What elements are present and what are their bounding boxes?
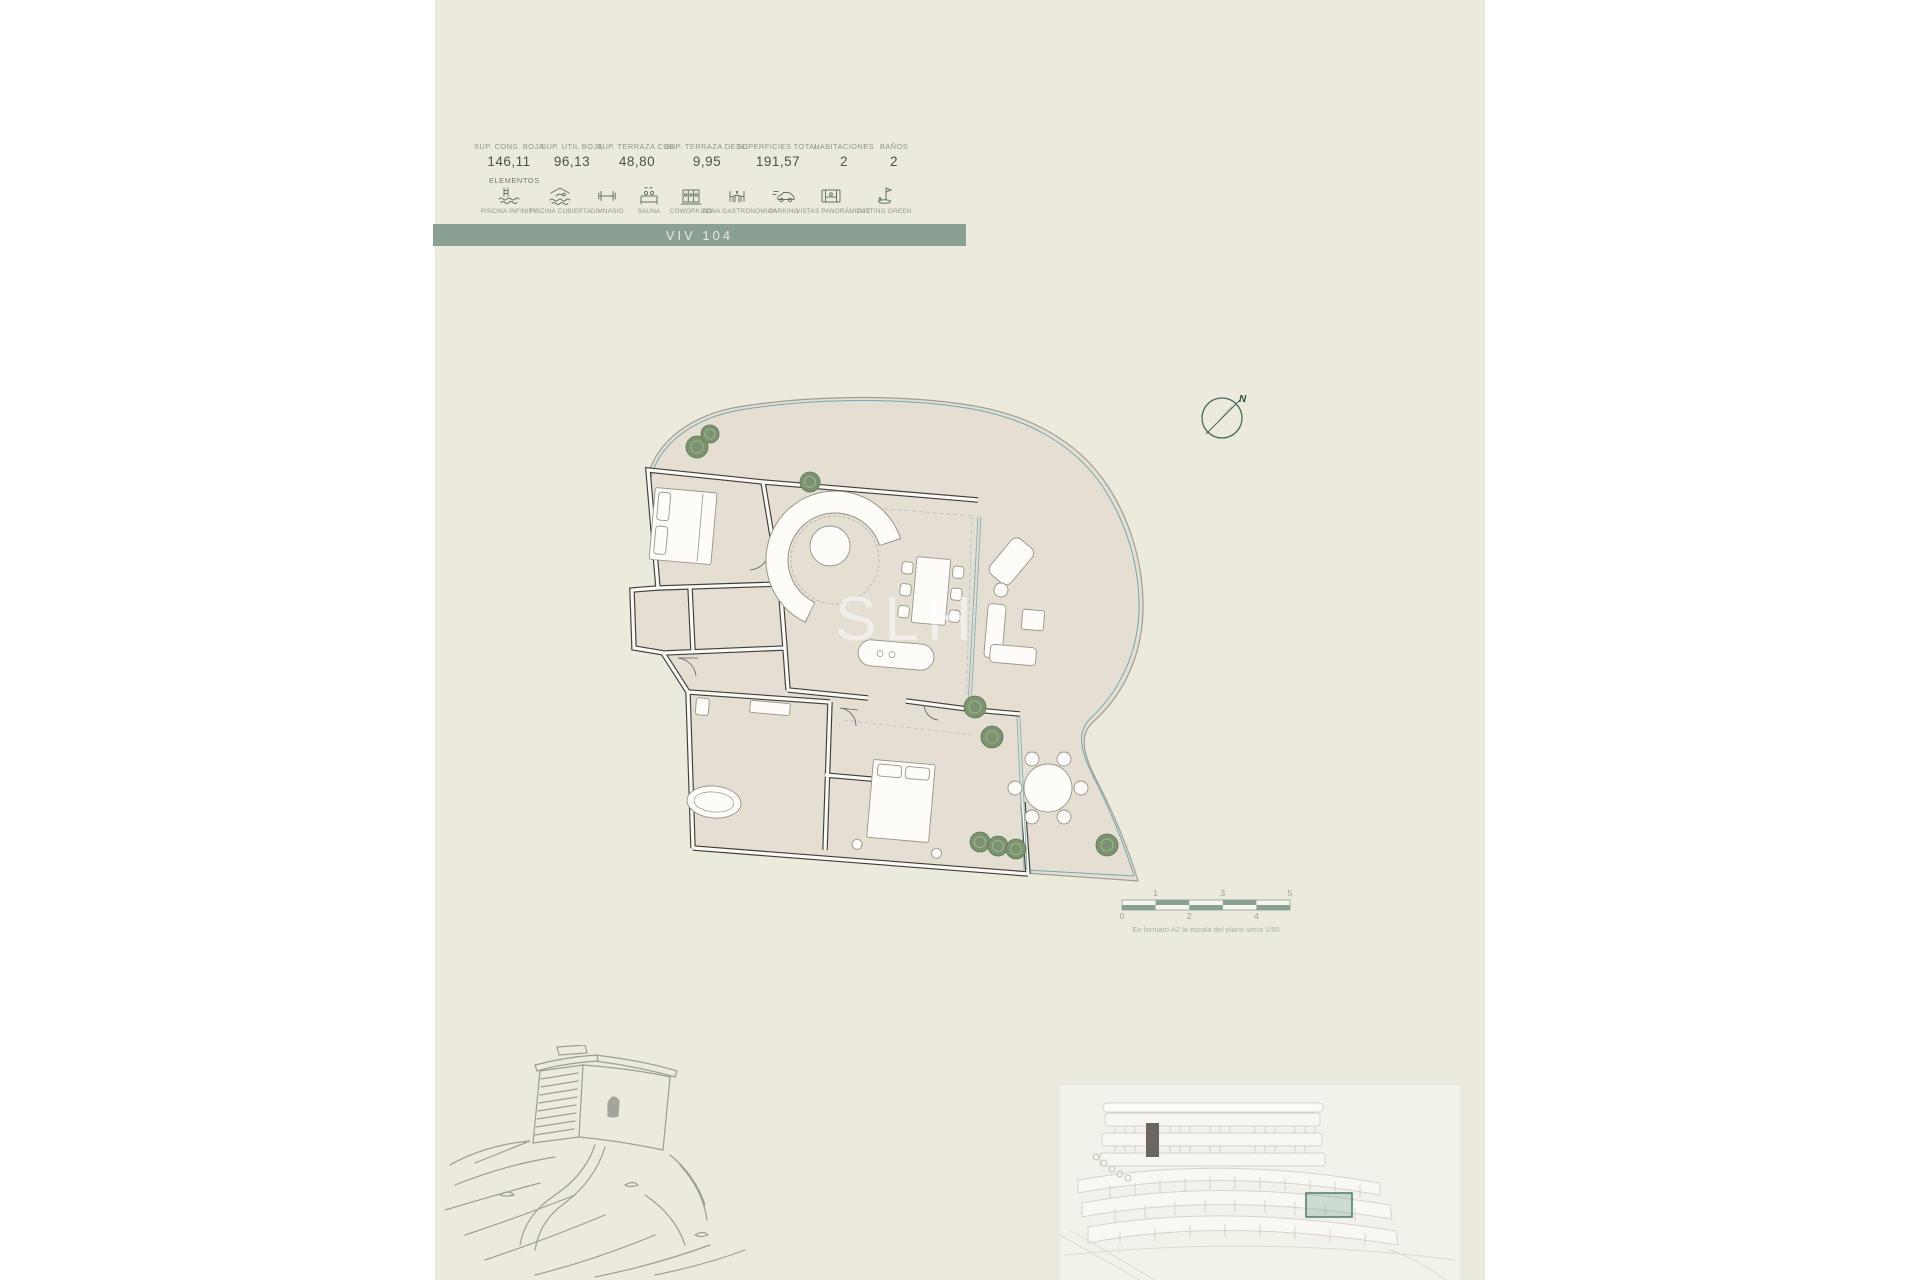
- panoramic-view-icon: [818, 186, 844, 206]
- scale-tick: 3: [1220, 888, 1225, 898]
- scale-tick: 1: [1153, 888, 1158, 898]
- scale-tick: 2: [1187, 911, 1192, 921]
- unit-banner: VIV 104: [433, 224, 966, 246]
- building-render: [1060, 1085, 1460, 1280]
- metric-habitaciones: HABITACIONES 2: [814, 142, 874, 169]
- bedroom1-bed: [649, 488, 717, 565]
- tree: [964, 696, 986, 718]
- tree: [970, 832, 990, 852]
- metric-value: 2: [814, 154, 874, 169]
- watermark: SLH: [835, 585, 980, 654]
- tree: [800, 472, 820, 492]
- scale-bar-segments: [1122, 900, 1290, 910]
- scale-bar: 1 3 5 0 2 4 En formato A2 la escala del …: [1110, 884, 1310, 940]
- scale-tick: 4: [1254, 911, 1259, 921]
- tree: [1096, 834, 1118, 856]
- metric-label: SUPERFICIES TOTAL: [737, 142, 819, 151]
- tree: [988, 836, 1008, 856]
- back-building-opening: [1146, 1123, 1159, 1157]
- page: { "banner": {"title": "VIV 104", "color"…: [0, 0, 1920, 1280]
- dining-icon: [724, 186, 750, 206]
- building-render-drawing: [1060, 1085, 1460, 1280]
- back-building: [1100, 1103, 1325, 1166]
- metric-label: SUP. UTIL BOJA: [541, 142, 603, 151]
- amenities-row: PISCINA INFINITY PISCINA CUBIERTA GIMNAS…: [433, 186, 973, 220]
- metric-label: HABITACIONES: [814, 142, 874, 151]
- car-icon: [771, 186, 797, 206]
- metric-label: BAÑOS: [880, 142, 908, 151]
- floor-plan: SLH N: [620, 380, 1320, 900]
- tower-sketch: [445, 1045, 780, 1280]
- metric-sup-cons-boja: SUP. CONS. BOJA 146,11: [474, 142, 544, 169]
- elements-heading: ELEMENTOS: [489, 176, 540, 185]
- amenity-label: PUTTING GREEN: [849, 208, 919, 215]
- amenity-putting-green: PUTTING GREEN: [849, 186, 919, 215]
- tree: [701, 425, 719, 443]
- unit-title: VIV 104: [666, 228, 733, 243]
- indoor-pool-icon: [547, 186, 573, 206]
- metric-sup-util-boja: SUP. UTIL BOJA 96,13: [541, 142, 603, 169]
- metric-value: 96,13: [541, 154, 603, 169]
- golf-flag-icon: [871, 186, 897, 206]
- unit-highlight-box: [1306, 1193, 1352, 1217]
- scale-caption: En formato A2 la escala del plano sería …: [1132, 925, 1279, 934]
- scale-tick: 5: [1288, 888, 1293, 898]
- tower-sketch-strokes: [445, 1045, 745, 1277]
- metric-value: 191,57: [737, 154, 819, 169]
- metric-label: SUP. CONS. BOJA: [474, 142, 544, 151]
- infinity-pool-icon: [496, 186, 522, 206]
- north-label: N: [1239, 394, 1247, 405]
- metric-superficies-total: SUPERFICIES TOTAL 191,57: [737, 142, 819, 169]
- scale-tick: 0: [1120, 911, 1125, 921]
- metric-value: 146,11: [474, 154, 544, 169]
- compass: N: [1202, 394, 1247, 438]
- tree: [1006, 839, 1026, 859]
- metric-banos: BAÑOS 2: [880, 142, 908, 169]
- tree: [981, 726, 1003, 748]
- coworking-icon: [678, 186, 704, 206]
- metric-value: 2: [880, 154, 908, 169]
